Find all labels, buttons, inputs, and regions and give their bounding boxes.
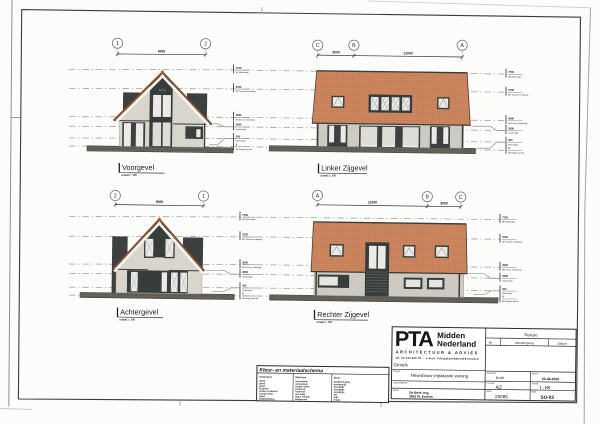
svg-text:2: 2 bbox=[204, 42, 207, 48]
svg-text:Schaal:: Schaal: bbox=[532, 383, 539, 385]
svg-text:Datum: Datum bbox=[557, 342, 567, 346]
svg-text:BK Nokhoogte: BK Nokhoogte bbox=[508, 75, 522, 78]
svg-text:Nieuwbouw vrijstaande woning: Nieuwbouw vrijstaande woning bbox=[411, 373, 469, 379]
svg-text:5700: 5700 bbox=[508, 89, 514, 92]
svg-text:C: C bbox=[459, 195, 463, 201]
svg-text:BK Tweede verdieping: BK Tweede verdieping bbox=[242, 239, 262, 241]
svg-text:7700: 7700 bbox=[242, 214, 248, 217]
svg-text:Omschrijving: Omschrijving bbox=[515, 341, 534, 345]
svg-text:2900: 2900 bbox=[236, 114, 242, 117]
svg-text:B: B bbox=[425, 195, 429, 201]
svg-text:7700: 7700 bbox=[502, 216, 508, 219]
svg-text:Plinthoogte: Plinthoogte bbox=[236, 140, 247, 143]
svg-text:9000: 9000 bbox=[156, 200, 164, 204]
svg-text:11000: 11000 bbox=[403, 52, 412, 56]
svg-text:3000: 3000 bbox=[440, 202, 448, 206]
svg-text:24-09-2025: 24-09-2025 bbox=[542, 377, 560, 381]
svg-text:9000: 9000 bbox=[158, 50, 166, 54]
svg-text:BK Eerste verdieping: BK Eerste verdieping bbox=[508, 122, 527, 125]
svg-text:BK Begane grond: BK Begane grond bbox=[242, 298, 258, 300]
svg-text:2600: 2600 bbox=[236, 124, 242, 127]
svg-text:5700: 5700 bbox=[502, 236, 508, 239]
svg-text:2900: 2900 bbox=[242, 262, 248, 265]
svg-text:Voorgevel: Voorgevel bbox=[122, 163, 154, 172]
svg-text:goten: goten bbox=[259, 395, 266, 398]
svg-text:1 : 100: 1 : 100 bbox=[540, 386, 551, 390]
svg-text:2600: 2600 bbox=[242, 271, 248, 274]
svg-text:B: B bbox=[352, 43, 356, 49]
svg-text:Plinthoogte: Plinthoogte bbox=[242, 289, 253, 292]
svg-text:Nederland: Nederland bbox=[437, 339, 476, 349]
svg-text:PTA: PTA bbox=[395, 327, 434, 352]
svg-text:Blad:: Blad: bbox=[532, 391, 537, 393]
svg-text:BK Tweede verdieping: BK Tweede verdieping bbox=[502, 241, 522, 243]
svg-text:3000: 3000 bbox=[332, 51, 340, 55]
svg-text:dakpannen: dakpannen bbox=[295, 399, 308, 401]
svg-text:Formaat:: Formaat: bbox=[487, 382, 496, 385]
svg-text:2900: 2900 bbox=[502, 264, 508, 267]
svg-text:C: C bbox=[316, 43, 320, 49]
svg-text:7700: 7700 bbox=[508, 71, 514, 74]
svg-text:Onderdeel: Onderdeel bbox=[259, 376, 272, 379]
svg-text:1: 1 bbox=[202, 194, 205, 200]
svg-text:BK Eerste verdieping: BK Eerste verdieping bbox=[236, 119, 255, 122]
svg-text:Getekend:: Getekend: bbox=[487, 372, 497, 375]
svg-text:schaal 1 : 100: schaal 1 : 100 bbox=[316, 321, 332, 324]
svg-text:SO-03: SO-03 bbox=[541, 395, 555, 400]
svg-text:Revisie: Revisie bbox=[524, 332, 538, 337]
svg-text:oranje: oranje bbox=[334, 400, 342, 402]
svg-text:5700: 5700 bbox=[242, 234, 248, 237]
svg-text:BK Nokhoogte: BK Nokhoogte bbox=[502, 221, 516, 224]
svg-text:5700: 5700 bbox=[236, 86, 242, 89]
svg-text:Goothoogte: Goothoogte bbox=[236, 128, 247, 131]
svg-text:Datum:: Datum: bbox=[532, 372, 539, 375]
svg-text:Project:: Project: bbox=[393, 370, 401, 373]
svg-text:Plinthoogte: Plinthoogte bbox=[502, 292, 513, 295]
svg-text:2: 2 bbox=[114, 193, 117, 199]
svg-text:7700: 7700 bbox=[236, 67, 242, 70]
svg-text:Achtergevel: Achtergevel bbox=[120, 308, 158, 317]
svg-text:BK Eerste verdieping: BK Eerste verdieping bbox=[242, 266, 261, 269]
svg-text:BK Tweede verdieping: BK Tweede verdieping bbox=[236, 91, 256, 93]
svg-text:Linker Zijgevel: Linker Zijgevel bbox=[321, 164, 368, 173]
svg-text:200: 200 bbox=[508, 139, 513, 142]
svg-text:25085: 25085 bbox=[495, 394, 508, 399]
svg-text:A: A bbox=[316, 193, 320, 199]
svg-text:RvdH: RvdH bbox=[496, 376, 505, 380]
svg-text:Goothoogte: Goothoogte bbox=[508, 132, 519, 135]
svg-text:200: 200 bbox=[502, 288, 507, 291]
svg-text:2600: 2600 bbox=[508, 127, 514, 130]
svg-text:BK Eerste verdieping: BK Eerste verdieping bbox=[502, 269, 521, 272]
svg-text:200: 200 bbox=[236, 135, 241, 138]
svg-text:Rechter Zijgevel: Rechter Zijgevel bbox=[317, 310, 369, 319]
svg-text:Kleur: Kleur bbox=[334, 377, 340, 380]
svg-text:Adres:: Adres: bbox=[393, 389, 400, 392]
svg-text:2600: 2600 bbox=[502, 275, 508, 278]
svg-text:Plinthoogte: Plinthoogte bbox=[508, 143, 519, 146]
svg-text:3852 PL Ermelo: 3852 PL Ermelo bbox=[409, 394, 433, 398]
svg-text:11000: 11000 bbox=[368, 201, 377, 205]
svg-text:Goothoogte: Goothoogte bbox=[242, 275, 253, 278]
svg-text:BK Begane grond: BK Begane grond bbox=[502, 301, 518, 303]
svg-text:BK Begane grond: BK Begane grond bbox=[236, 149, 252, 151]
svg-text:Gevels: Gevels bbox=[393, 362, 408, 367]
svg-text:200: 200 bbox=[242, 285, 247, 288]
svg-text:schaal 1 : 100: schaal 1 : 100 bbox=[119, 319, 135, 322]
svg-text:BK Tweede verdieping: BK Tweede verdieping bbox=[508, 94, 528, 96]
svg-text:BK Begane grond: BK Begane grond bbox=[508, 153, 524, 155]
svg-text:2900: 2900 bbox=[508, 118, 514, 121]
svg-text:Goothoogte: Goothoogte bbox=[502, 280, 513, 283]
svg-text:schaal 1 : 100: schaal 1 : 100 bbox=[320, 175, 336, 178]
svg-text:schaal 1 : 100: schaal 1 : 100 bbox=[121, 174, 137, 177]
svg-text:Opdrachtgever:: Opdrachtgever: bbox=[393, 381, 409, 384]
svg-text:Materiaal: Materiaal bbox=[295, 376, 306, 379]
svg-text:Werk:: Werk: bbox=[486, 390, 492, 393]
svg-text:BK Nokhoogte: BK Nokhoogte bbox=[242, 218, 256, 221]
svg-text:A: A bbox=[460, 43, 464, 49]
svg-text:1: 1 bbox=[116, 41, 119, 47]
svg-text:BK Nokhoogte: BK Nokhoogte bbox=[236, 71, 250, 74]
svg-text:dakbedekking: dakbedekking bbox=[259, 399, 275, 401]
